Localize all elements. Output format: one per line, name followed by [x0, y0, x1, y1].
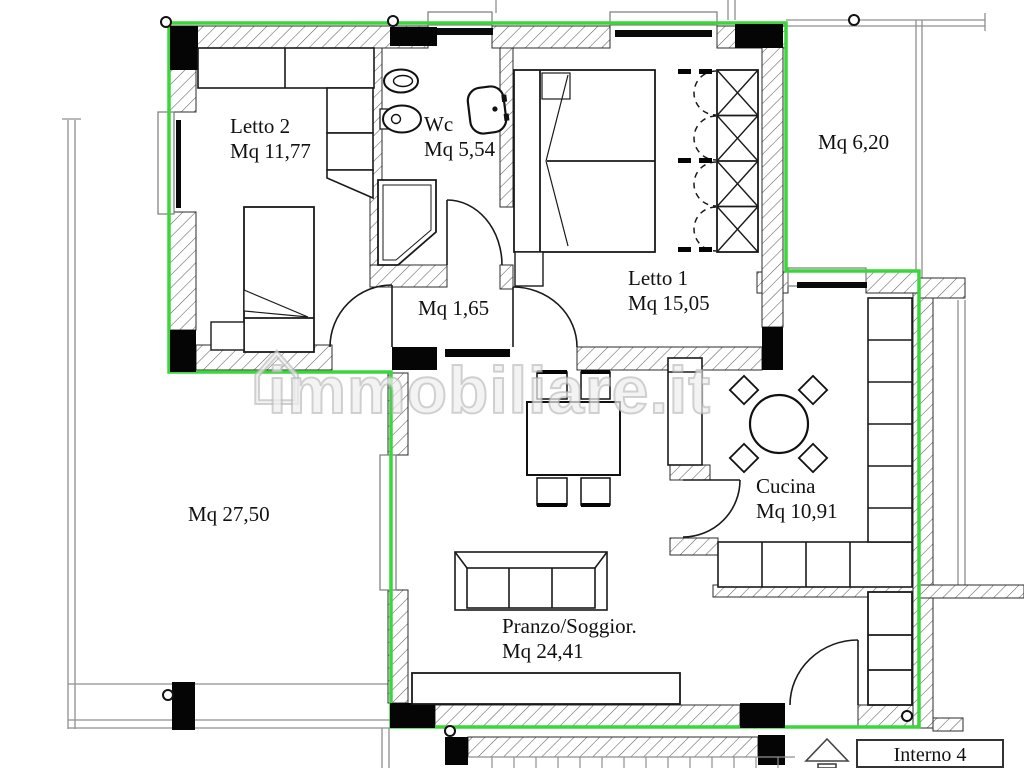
- staircase: [468, 757, 795, 768]
- unit-label-box: Interno 4: [856, 739, 1004, 768]
- room-name: Letto 1: [628, 266, 710, 291]
- label-letto1: Letto 1 Mq 15,05: [628, 266, 710, 316]
- door-wc: [447, 200, 502, 265]
- single-bed: [211, 207, 314, 352]
- room-area: Mq 5,54: [424, 137, 495, 162]
- sideboard: [412, 673, 680, 704]
- entry-cabinet: [868, 592, 912, 705]
- room-area: Mq 11,77: [230, 139, 311, 164]
- door-cucina: [683, 480, 740, 537]
- bidet-icon: [380, 106, 421, 133]
- label-hallway: Mq 1,65: [418, 296, 489, 321]
- sofa: [455, 552, 607, 610]
- shower: [378, 180, 436, 265]
- toilet-icon: [384, 70, 418, 93]
- room-name: Letto 2: [230, 114, 311, 139]
- room-name: Wc: [424, 112, 495, 137]
- room-area: Mq 27,50: [188, 502, 270, 527]
- label-balcony-right: Mq 6,20: [818, 130, 889, 155]
- label-living: Pranzo/Soggior. Mq 24,41: [502, 614, 637, 664]
- door-letto2: [330, 285, 392, 347]
- unit-label: Interno 4: [894, 744, 967, 766]
- door-letto1: [513, 287, 577, 347]
- floor-plan-page: ⌂ immobiliare.it Letto 2 Mq 11,77 Wc Mq …: [0, 0, 1024, 768]
- room-name: Cucina: [756, 474, 838, 499]
- room-area: Mq 1,65: [418, 296, 489, 321]
- label-wc: Wc Mq 5,54: [424, 112, 495, 162]
- kitchen-counter: [718, 298, 912, 587]
- room-area: Mq 15,05: [628, 291, 710, 316]
- label-cucina: Cucina Mq 10,91: [756, 474, 838, 524]
- room-area: Mq 24,41: [502, 639, 637, 664]
- room-area: Mq 6,20: [818, 130, 889, 155]
- room-name: Pranzo/Soggior.: [502, 614, 637, 639]
- room-area: Mq 10,91: [756, 499, 838, 524]
- divider-cabinet: [668, 358, 702, 465]
- label-letto2: Letto 2 Mq 11,77: [230, 114, 311, 164]
- entrance-symbol-icon: [806, 739, 848, 768]
- wardrobe-letto1: [717, 70, 758, 252]
- door-entrance: [790, 640, 858, 705]
- double-bed: [514, 70, 655, 286]
- dining-table: [527, 402, 620, 475]
- kitchen-table: [750, 395, 808, 453]
- label-terrace-left: Mq 27,50: [188, 502, 270, 527]
